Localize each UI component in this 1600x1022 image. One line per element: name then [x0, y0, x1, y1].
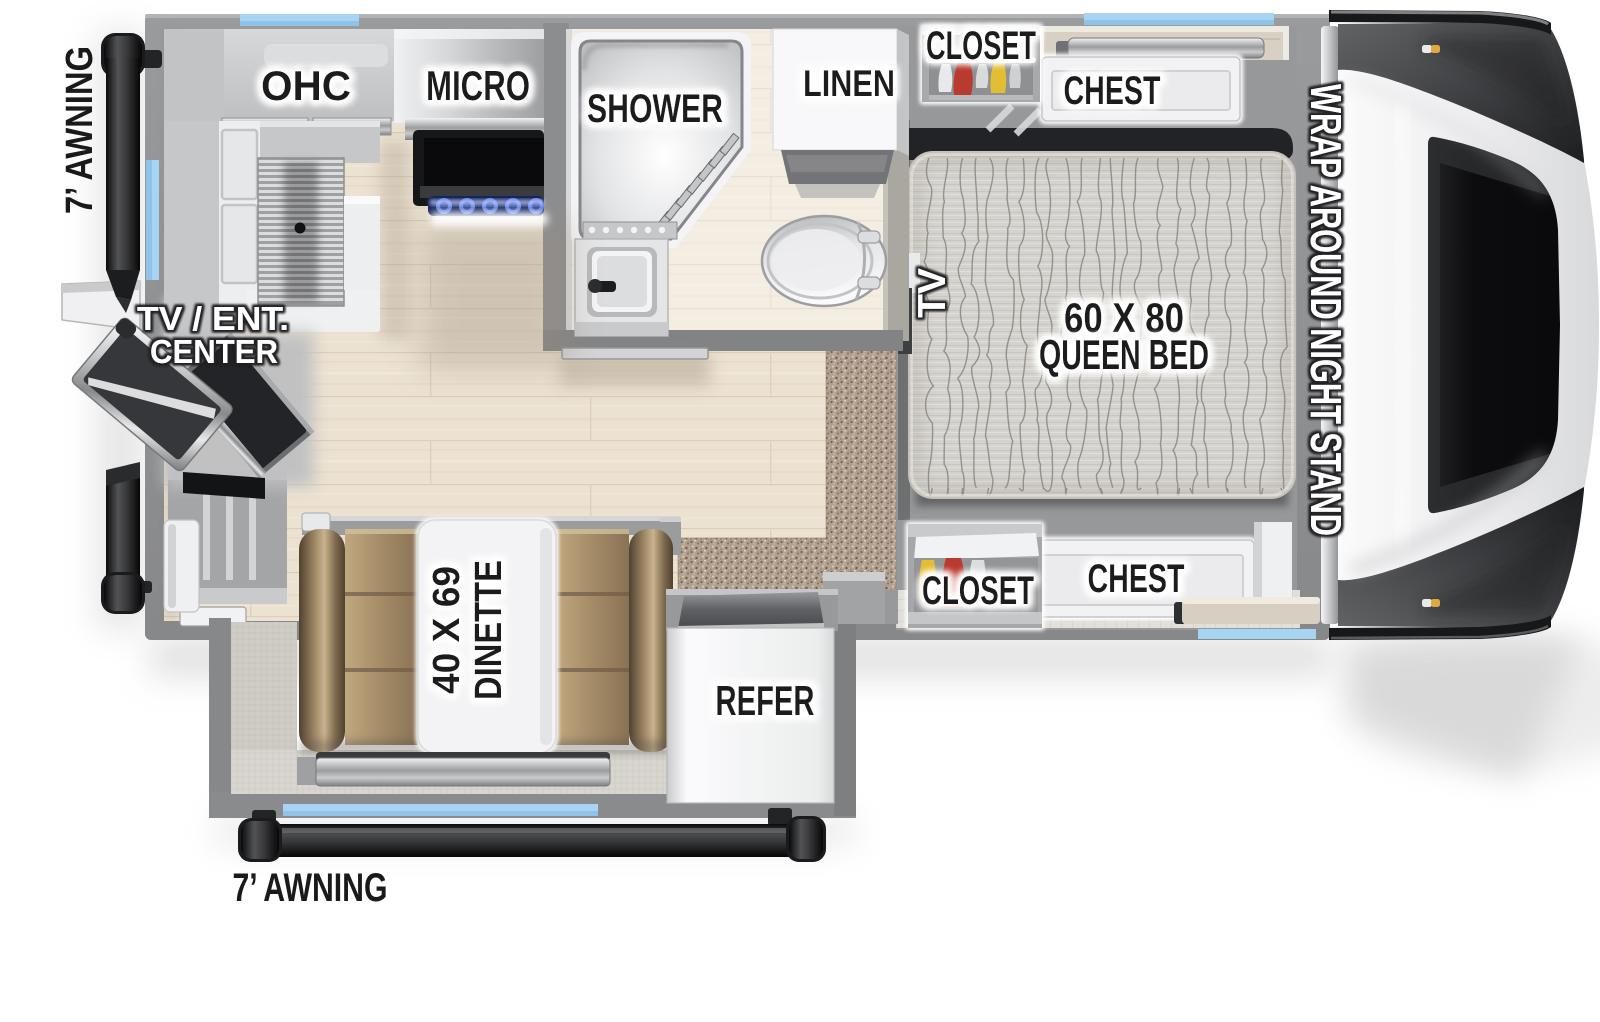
svg-text:DINETTE: DINETTE: [468, 560, 510, 700]
svg-text:40 X 69: 40 X 69: [426, 566, 468, 694]
svg-text:MICRO: MICRO: [426, 62, 530, 109]
svg-text:LINEN: LINEN: [803, 63, 895, 104]
svg-text:REFER: REFER: [716, 677, 815, 724]
svg-text:7’ AWNING: 7’ AWNING: [233, 866, 388, 910]
svg-text:SHOWER: SHOWER: [587, 87, 723, 131]
svg-text:WRAP AROUND NIGHT STAND: WRAP AROUND NIGHT STAND: [1301, 84, 1350, 536]
svg-text:TV / ENT.: TV / ENT.: [137, 300, 289, 337]
svg-text:CENTER: CENTER: [150, 333, 278, 370]
svg-text:CLOSET: CLOSET: [922, 569, 1034, 613]
svg-text:QUEEN BED: QUEEN BED: [1039, 331, 1209, 378]
svg-text:CHEST: CHEST: [1088, 557, 1185, 601]
svg-text:OHC: OHC: [261, 62, 351, 109]
svg-text:TV: TV: [911, 268, 954, 318]
svg-text:CLOSET: CLOSET: [926, 24, 1036, 68]
svg-text:CHEST: CHEST: [1064, 69, 1161, 113]
svg-text:7’ AWNING: 7’ AWNING: [59, 46, 101, 214]
